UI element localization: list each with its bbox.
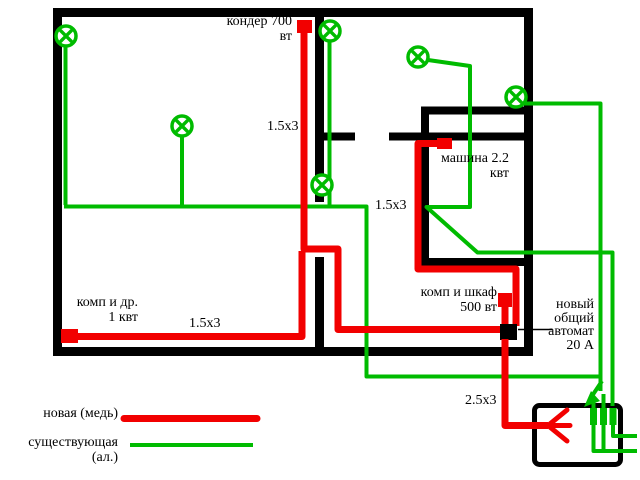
label-conditioner: кондер 700 вт <box>172 15 292 45</box>
label-cable-comp: 1.5x3 <box>189 317 221 332</box>
label-cable-conditioner: 1.5x3 <box>267 120 299 135</box>
label-cable-feed: 2.5x3 <box>465 394 497 409</box>
panel-breaker-2 <box>600 408 607 425</box>
label-cable-machine: 1.5x3 <box>375 199 407 214</box>
lamp-icon <box>320 21 340 41</box>
label-machine: машина 2.2 квт <box>389 152 509 182</box>
panel-breaker-3 <box>610 408 617 425</box>
legend-existing-label: существующая (ал.) <box>0 436 118 466</box>
breaker-output-lines <box>594 425 638 451</box>
panel-box <box>535 406 621 465</box>
lamp-icon <box>172 116 192 136</box>
outlet-conditioner <box>297 20 312 33</box>
wiring-diagram: кондер 700 вт 1.5x3 машина 2.2 квт 1.5x3… <box>0 0 640 480</box>
outlet-machine <box>437 138 452 149</box>
outlet-comp-other <box>61 329 78 343</box>
lamp-icon <box>56 26 76 46</box>
legend-new-label: новая (медь) <box>0 407 118 422</box>
label-comp-other: комп и др. 1 квт <box>18 296 138 326</box>
lamp-icon <box>506 87 526 107</box>
feed-fork-icon <box>548 410 570 441</box>
label-new-breaker: новый общий автомат 20 А <box>474 298 594 352</box>
lamp-icon <box>312 175 332 195</box>
existing-wiring <box>64 39 637 451</box>
lamp-icon <box>408 47 428 67</box>
panel-breaker-1 <box>590 408 597 425</box>
